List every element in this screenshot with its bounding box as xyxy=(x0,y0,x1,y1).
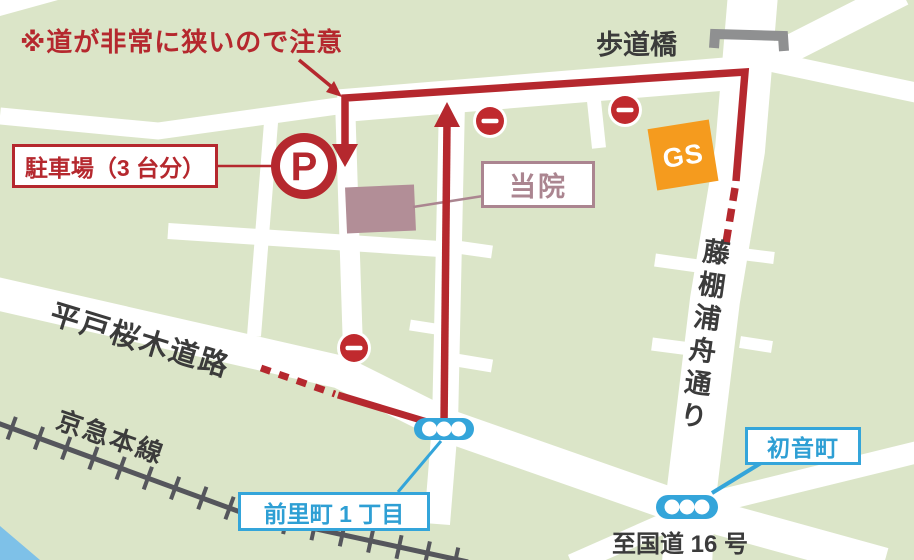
road-northeast-diagonal xyxy=(768,0,902,60)
parking-label: 駐車場（3 台分） xyxy=(12,144,218,188)
road-stub-2 xyxy=(655,260,698,266)
warning-arrow-line xyxy=(299,60,333,88)
traffic-signal-icon xyxy=(656,495,718,519)
no-entry-sign-icon xyxy=(608,93,642,127)
road-east-diagonal xyxy=(772,62,914,93)
gas-station-label: GS xyxy=(661,138,706,174)
clinic-label: 当院 xyxy=(481,161,595,208)
road-mid-horizontal xyxy=(168,231,455,250)
road-gs-stub xyxy=(592,82,599,148)
road-west-vertical xyxy=(254,110,272,336)
traffic-signal-icon xyxy=(414,418,474,440)
gas-station-icon: GS xyxy=(648,120,719,191)
road-top-west xyxy=(0,104,352,131)
water-area xyxy=(0,526,40,560)
parking-icon: P xyxy=(271,133,337,199)
access-map: GS P xyxy=(0,0,914,560)
route16-label: 至国道 16 号 xyxy=(612,524,748,559)
road-top-left-sliver xyxy=(0,0,58,16)
no-entry-sign-icon xyxy=(337,331,371,365)
clinic-building xyxy=(345,184,416,233)
warning-note: ※道が非常に狭いので注意 xyxy=(20,22,343,59)
road-stub-3 xyxy=(742,254,774,258)
hatsune-intersection-label: 初音町 xyxy=(745,427,861,465)
route-clinic-street-arm xyxy=(444,123,447,424)
parking-symbol: P xyxy=(291,145,318,189)
map-canvas: GS P xyxy=(0,0,914,560)
road-stub-4 xyxy=(450,359,492,366)
road-stub-7 xyxy=(410,325,442,330)
road-stub-1 xyxy=(457,247,492,252)
road-stub-6 xyxy=(740,342,772,347)
no-entry-sign-icon xyxy=(473,104,507,138)
pedestrian-bridge-label: 歩道橋 xyxy=(596,23,677,62)
maezato-intersection-label: 前里町 1 丁目 xyxy=(238,492,430,531)
